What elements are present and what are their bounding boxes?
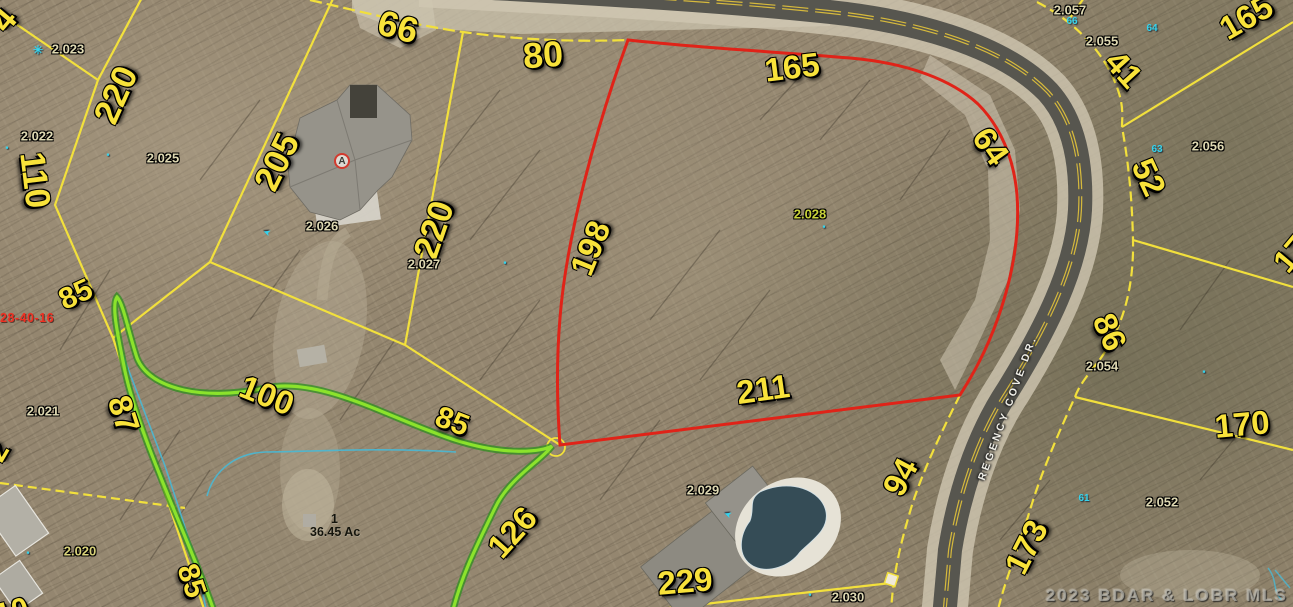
parcel-id-label: 2.052 — [1146, 496, 1179, 509]
tract-acreage-label: 36.45 Ac — [310, 526, 360, 539]
dot-marker-icon: ▪ — [106, 151, 109, 160]
parcel-id-label: 2.054 — [1086, 360, 1119, 373]
partial-dimension-label: 4 — [0, 2, 23, 38]
dimension-label: 64 — [967, 121, 1015, 170]
lot-number-label: 66 — [1066, 17, 1077, 27]
parcel-id-label: 2.027 — [408, 258, 441, 271]
dot-marker-icon: ▪ — [5, 144, 8, 153]
parcel-id-label: 2.055 — [1086, 35, 1119, 48]
arrow-marker-icon: ➤ — [262, 227, 271, 237]
dimension-label: 220 — [408, 197, 460, 264]
dimension-label: 165 — [1214, 0, 1278, 45]
dimension-label: 126 — [481, 500, 542, 563]
parcel-id-label: 2.023 — [52, 43, 85, 56]
section-township-range-label: 28-40-16 — [0, 312, 54, 325]
parcel-id-label: 2.025 — [147, 152, 180, 165]
partial-dimension-label: 17 — [1267, 230, 1293, 278]
dimension-label: 165 — [763, 47, 822, 86]
parcel-id-label: 2.030 — [832, 591, 865, 604]
dot-marker-icon: ▪ — [1202, 368, 1205, 377]
parcel-id-label: 2.026 — [306, 220, 339, 233]
arrow-marker-icon: ➤ — [723, 509, 732, 519]
parcel-id-label: 2.056 — [1192, 140, 1225, 153]
lot-number-label: 63 — [1151, 145, 1162, 155]
partial-dimension-label: 2 — [0, 437, 15, 466]
parcel-id-label: 2.028 — [794, 208, 827, 221]
map-labels-layer: 28-40-16 1 36.45 Ac REGENCY COVE DR. 668… — [0, 0, 1293, 607]
dimension-label: 100 — [235, 369, 298, 420]
dimension-label: 211 — [734, 369, 791, 409]
dot-marker-icon: ▪ — [503, 259, 506, 268]
parcel-id-label: 2.057 — [1054, 4, 1087, 17]
aerial-map-viewport[interactable]: 28-40-16 1 36.45 Ac REGENCY COVE DR. 668… — [0, 0, 1293, 607]
dimension-label: 229 — [656, 562, 714, 600]
house-A-marker: A — [334, 153, 350, 169]
lot-number-label: 61 — [1078, 494, 1089, 504]
tract-lot-number: 1 — [331, 513, 338, 526]
parcel-id-label: 2.029 — [687, 484, 720, 497]
dimension-label: 85 — [431, 402, 473, 442]
dimension-label: 220 — [88, 61, 144, 129]
dimension-label: 205 — [248, 128, 305, 196]
dimension-label: 86 — [1087, 309, 1132, 356]
dimension-label: 170 — [1213, 405, 1271, 443]
dot-marker-icon: ▪ — [808, 591, 811, 600]
parcel-id-label: 2.020 — [64, 545, 97, 558]
dot-marker-icon: ▪ — [822, 223, 825, 232]
dimension-label: 41 — [1099, 44, 1148, 93]
dimension-label: 66 — [374, 4, 422, 49]
dimension-label: 94 — [877, 453, 923, 501]
dimension-label: 80 — [522, 36, 564, 75]
dimension-label: 52 — [1126, 153, 1171, 200]
tree-marker-icon: ✳ — [33, 44, 43, 56]
road-name-label: REGENCY COVE DR. — [977, 334, 1039, 482]
dimension-label: 85 — [55, 274, 98, 315]
parcel-id-label: 2.021 — [27, 405, 60, 418]
dot-marker-icon: ▪ — [26, 549, 29, 558]
dimension-label: 87 — [103, 391, 146, 436]
dimension-label: 85 — [171, 560, 210, 601]
parcel-id-label: 2.022 — [21, 130, 54, 143]
dimension-label: 198 — [564, 216, 615, 279]
partial-dimension-label: 10 — [0, 593, 32, 607]
mls-watermark: 2023 BDAR & LOBR MLS — [1046, 586, 1288, 606]
lot-number-label: 64 — [1146, 24, 1157, 34]
dimension-label: 110 — [14, 150, 56, 210]
dimension-label: 173 — [999, 515, 1053, 579]
